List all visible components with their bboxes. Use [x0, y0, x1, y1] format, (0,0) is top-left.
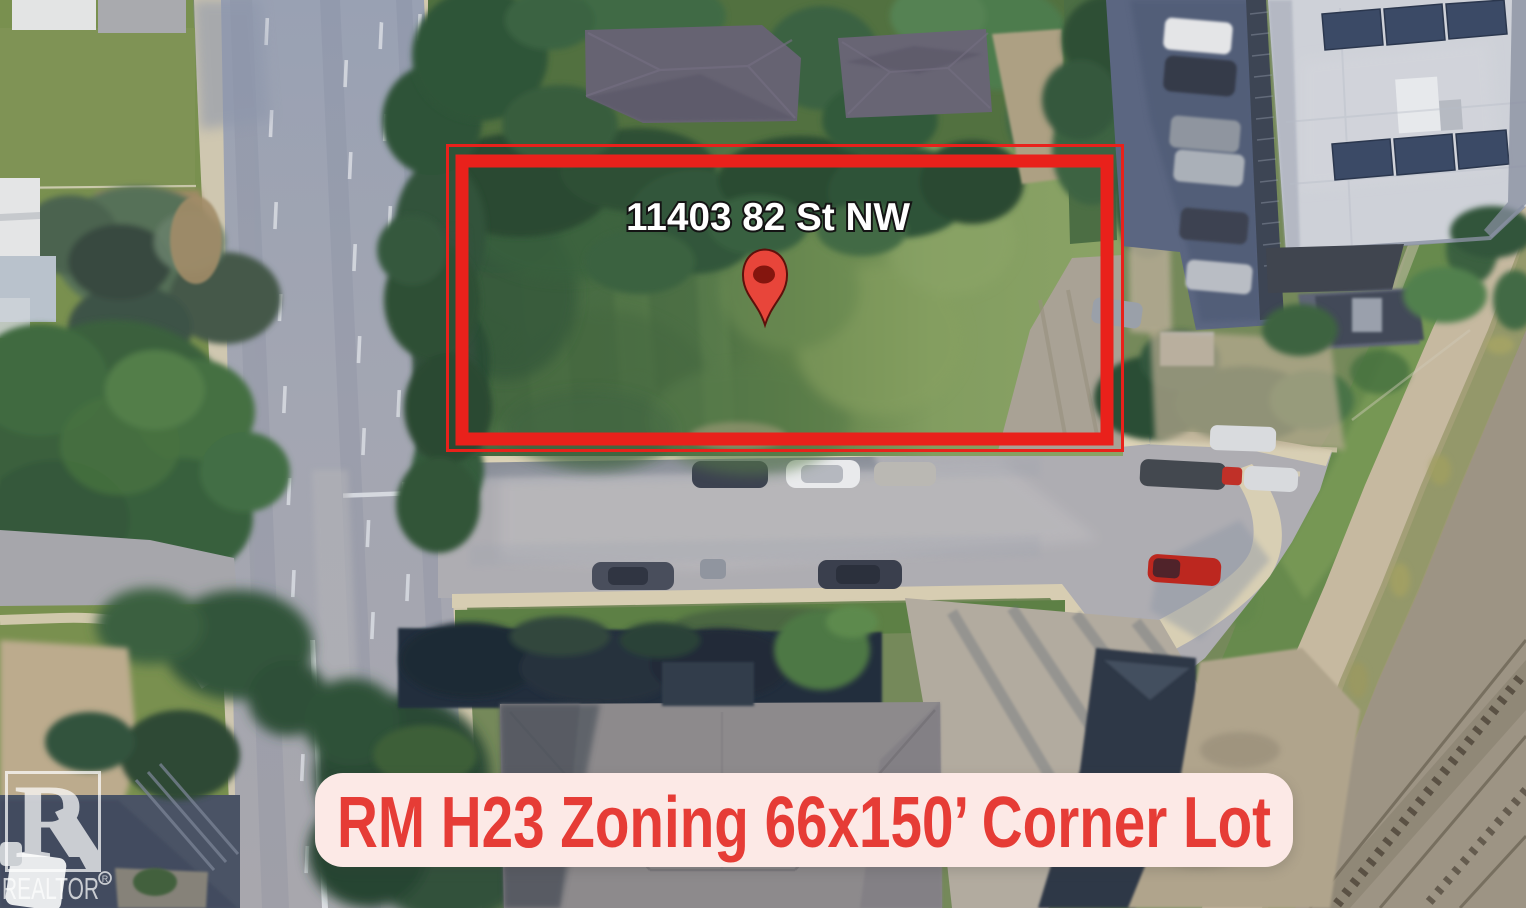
svg-text:R: R — [14, 763, 92, 880]
svg-text:11403 82 St NW: 11403 82 St NW — [626, 196, 910, 239]
svg-text:R: R — [102, 874, 109, 884]
svg-text:RM H23 Zoning 66x150’ Corner L: RM H23 Zoning 66x150’ Corner Lot — [337, 783, 1271, 863]
svg-text:REALTOR: REALTOR — [2, 871, 99, 906]
